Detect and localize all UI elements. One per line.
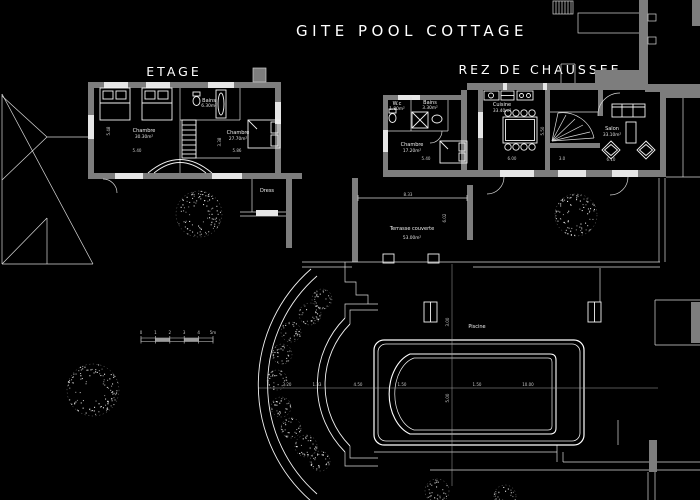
scale-tick-label: 1 (154, 330, 157, 335)
room-area: 27.70m² (229, 136, 247, 142)
dimension: 6.10 (607, 157, 616, 162)
room-label: Cuisine (493, 102, 511, 108)
dimension: 3.0 (559, 156, 566, 161)
dimension: 5.40 (133, 148, 142, 153)
room-area: 30.30m² (135, 134, 153, 140)
scale-tick-label: 5m (210, 330, 217, 335)
dimension: 5.86 (233, 148, 242, 153)
dimension: 8.33 (404, 192, 413, 197)
room-area: 33.40m² (493, 108, 511, 114)
armchair (637, 141, 655, 159)
dimension: 5.40 (422, 156, 431, 161)
room-label: Terrasse couverte (389, 226, 434, 232)
scale-tick-label: 3 (183, 330, 186, 335)
adjacent-roof (2, 94, 93, 264)
vegetation (67, 191, 597, 500)
kitchen-counter (484, 91, 533, 100)
bed (100, 88, 130, 120)
dimension: 3.38 (217, 137, 222, 146)
bush-symbol (310, 451, 330, 471)
door-swing-arcs (487, 177, 628, 195)
dining-table (503, 110, 537, 150)
pool-pillar (588, 302, 601, 322)
coffee-table (626, 122, 636, 143)
dimension: 3.00 (445, 317, 450, 326)
dimension: 10.00 (522, 382, 534, 387)
sofa (612, 104, 645, 117)
room-label: Dress (260, 188, 274, 194)
door-swing-arc (103, 179, 117, 193)
terrasse-couverte: 8.33 6.02 Terrasse couverte 53.00m² (352, 178, 473, 263)
room-label: Chambre (227, 130, 250, 136)
room-label: Chambre (401, 142, 424, 148)
floorplan-drawing: GITE POOL COTTAGE ETAGE REZ DE CHAUSSEE (0, 0, 700, 500)
pool-basin (389, 354, 556, 434)
scale-tick-label: 2 (169, 330, 172, 335)
room-label: Piscine (468, 324, 485, 330)
winder-staircase (550, 112, 598, 141)
room-area: 1.80m² (389, 106, 405, 112)
dimension: 3.20 (283, 382, 292, 387)
room-label: Chambre (133, 128, 156, 134)
dress-annex: Dress (240, 176, 292, 248)
room-area: 33.10m² (603, 132, 621, 138)
exterior-stair-hatch (553, 1, 573, 14)
etage-windows (88, 82, 281, 179)
pool-coping (374, 340, 584, 445)
washbasin (432, 115, 442, 123)
dimension: 5.50 (540, 126, 545, 135)
bush-symbol (494, 485, 516, 500)
plan-canvas: GITE POOL COTTAGE ETAGE REZ DE CHAUSSEE (0, 0, 700, 500)
etage-plan: Chambre 30.30m² Bains 6.30m² Chambre 27.… (88, 68, 302, 193)
pool-area: Piscine 3.20 1.33 4.50 1.50 1.50 10.00 3… (258, 262, 700, 486)
scale-tick-label: 0 (140, 330, 143, 335)
bush-symbol (267, 370, 287, 390)
room-area: 6.30m² (201, 103, 217, 109)
dimension: 6.02 (442, 213, 447, 222)
dimension: 4.50 (354, 382, 363, 387)
room-area: 53.00m² (403, 235, 421, 241)
room-area: 3.30m² (422, 105, 438, 111)
dimension: 5.48 (106, 126, 111, 135)
staircase (182, 120, 196, 158)
rdc-plan: W.c 1.80m² Bains 3.30m² Chambre 17.20m² … (383, 64, 666, 195)
dimension: 1.50 (473, 382, 482, 387)
toilet (193, 92, 200, 106)
drawing-title: GITE POOL COTTAGE (296, 22, 528, 40)
pool-pillar (424, 302, 437, 322)
dimension: 6.00 (508, 156, 517, 161)
bathtub (216, 90, 226, 118)
shower (412, 112, 428, 128)
bed (142, 88, 172, 120)
etage-heading: ETAGE (146, 64, 201, 79)
room-area: 17.20m² (403, 148, 421, 154)
room-label: Salon (605, 126, 619, 132)
dimension: 1.50 (398, 382, 407, 387)
dimension: 5.00 (445, 393, 450, 402)
bush-symbol (281, 418, 301, 438)
bush-symbol (281, 322, 301, 342)
scale-bar: 0 1 2 3 4 5m (140, 330, 217, 344)
scale-tick-label: 4 (197, 330, 200, 335)
bush-symbol (271, 397, 291, 417)
